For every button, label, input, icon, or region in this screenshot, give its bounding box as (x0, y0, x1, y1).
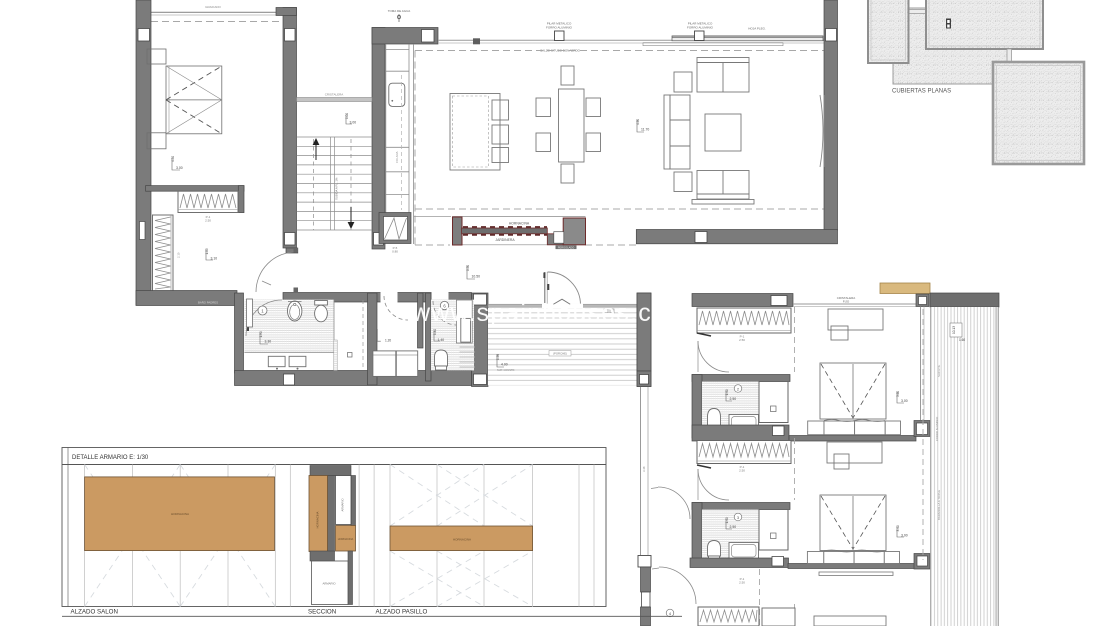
svg-text:FORRO ALUMINIO: FORRO ALUMINIO (546, 26, 573, 30)
svg-text:10.50: 10.50 (472, 275, 481, 279)
svg-text:HORNACINA: HORNACINA (316, 511, 320, 528)
svg-text:HORNACINA: HORNACINA (509, 222, 530, 226)
svg-text:TOMA DE AGUA: TOMA DE AGUA (388, 9, 411, 13)
svg-text:3.10: 3.10 (211, 257, 218, 261)
svg-text:1.00: 1.00 (345, 113, 349, 119)
svg-text:SUP. CONSTR.: SUP. CONSTR. (497, 368, 515, 372)
svg-text:CRISTALERA: CRISTALERA (325, 93, 344, 97)
svg-text:SUBIDA A PL. 1%: SUBIDA A PL. 1% (335, 177, 339, 200)
svg-text:2.50: 2.50 (730, 397, 737, 401)
svg-text:1.40: 1.40 (438, 338, 445, 342)
svg-text:SECCION: SECCION (308, 609, 336, 616)
svg-text:ALZADO PASILLO: ALZADO PASILLO (376, 609, 428, 616)
svg-text:HOJA PLEG.: HOJA PLEG. (748, 27, 766, 31)
svg-text:1.40: 1.40 (433, 329, 437, 335)
svg-text:1.40: 1.40 (725, 517, 729, 523)
svg-text:0.50: 0.50 (466, 265, 470, 271)
svg-text:BARANDILLA A TRIPLE: BARANDILLA A TRIPLE (937, 490, 941, 520)
svg-text:2.50: 2.50 (205, 219, 211, 223)
svg-text:FIJO: FIJO (843, 300, 850, 304)
svg-text:1.05: 1.05 (205, 248, 209, 254)
svg-text:4.50: 4.50 (171, 156, 175, 162)
svg-text:www.spainhouses.com: www.spainhouses.com (411, 299, 689, 327)
svg-text:PERGOLADO: PERGOLADO (558, 245, 574, 249)
svg-text:CUBIERTAS PLANAS: CUBIERTAS PLANAS (892, 89, 951, 95)
svg-text:DETALLE ARMARIO E: 1/30: DETALLE ARMARIO E: 1/30 (72, 455, 149, 461)
svg-text:2.50: 2.50 (739, 338, 745, 342)
svg-text:11.70: 11.70 (641, 128, 649, 132)
svg-text:3.48: 3.48 (642, 466, 646, 472)
svg-text:3.00: 3.00 (350, 121, 357, 125)
svg-text:3.60: 3.60 (896, 391, 900, 397)
svg-text:1.90: 1.90 (259, 331, 263, 337)
svg-text:ARMARIO: ARMARIO (341, 498, 345, 512)
svg-text:ALZADO SALON: ALZADO SALON (71, 609, 118, 616)
svg-text:4.90: 4.90 (636, 119, 640, 125)
svg-text:GRAFIADO: GRAFIADO (205, 5, 221, 9)
svg-text:HORNACINA: HORNACINA (171, 512, 189, 516)
svg-text:2.10: 2.10 (177, 252, 181, 258)
svg-text:3.00: 3.00 (901, 399, 908, 403)
svg-text:FORRO ALUMINIO: FORRO ALUMINIO (935, 416, 939, 441)
svg-text:3.30: 3.30 (265, 340, 272, 344)
svg-text:COLADA: COLADA (395, 151, 399, 163)
svg-text:3.00: 3.00 (901, 534, 908, 538)
svg-text:1.98: 1.98 (496, 354, 500, 360)
svg-text:3.40: 3.40 (896, 525, 900, 531)
svg-text:1.40: 1.40 (725, 389, 729, 395)
svg-text:1.60: 1.60 (959, 338, 965, 342)
svg-text:ARMARIO: ARMARIO (322, 582, 336, 586)
svg-text:1.20: 1.20 (385, 339, 391, 343)
svg-text:HORNACINA: HORNACINA (338, 537, 354, 541)
svg-text:0.80: 0.80 (392, 250, 398, 254)
svg-text:BAÑO PADRES: BAÑO PADRES (198, 300, 218, 305)
svg-text:2.50: 2.50 (739, 469, 745, 473)
svg-text:JARDINERA: JARDINERA (495, 238, 515, 242)
svg-text:SUP.UTIL: SUP.UTIL (937, 364, 941, 377)
svg-text:2.50: 2.50 (739, 581, 745, 585)
svg-text:4.00: 4.00 (501, 363, 508, 367)
svg-text:10.13: 10.13 (952, 326, 956, 334)
svg-text:3.00: 3.00 (176, 166, 183, 170)
svg-text:(PORCHE): (PORCHE) (553, 352, 567, 356)
svg-text:HORNACINA: HORNACINA (453, 538, 471, 542)
svg-text:2.50: 2.50 (730, 525, 737, 529)
svg-text:FORRO ALUMINIO: FORRO ALUMINIO (687, 26, 714, 30)
